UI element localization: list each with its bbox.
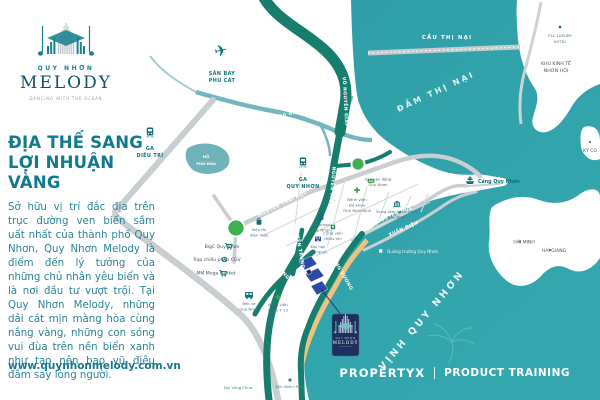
logo-brand-name: MELODY: [10, 73, 122, 93]
poi-benh-vien-tinh: Bệnh viện Đa khoa Tỉnh Bình Định: [342, 187, 372, 213]
dot-marker: [559, 26, 562, 29]
landmark-icon: [289, 379, 292, 382]
airplane-icon: ✈: [212, 40, 229, 61]
project-badge: QUY NHƠN MELODY: [332, 314, 359, 356]
intro-paragraph: Sở hữu vị trí đắc địa trên trục đường ve…: [8, 201, 155, 383]
bus-icon: [245, 292, 253, 299]
brand-logo: QUY NHƠN MELODY DANCING WITH THE OCEAN: [10, 8, 122, 101]
poi-ga-quy-nhon: GA QUY NHƠN: [286, 158, 319, 191]
shopping-cart-icon: [225, 243, 233, 249]
headline-line2: LỢI NHUẬN VÀNG: [8, 153, 114, 192]
svg-text:Núi Vũng Chua: Núi Vũng Chua: [224, 385, 252, 390]
svg-text:MM Mega Market: MM Mega Market: [196, 271, 235, 277]
intro-block: ĐỊA THẾ SANG LỢI NHUẬN VÀNG Sở hữu vị tr…: [8, 133, 155, 383]
product-training-label: PRODUCT TRAINING: [444, 367, 570, 379]
svg-text:Đại học: Đại học: [311, 244, 326, 249]
hospital-cross-icon: [354, 187, 360, 193]
svg-text:thiếu nhi: thiếu nhi: [324, 236, 341, 241]
footer-divider: [434, 367, 435, 379]
roundabout: [352, 158, 365, 171]
poster: QUY NHƠN MELODY CẦU THỊ NẠI ĐẦM THỊ NẠI …: [0, 0, 600, 400]
university-building-icon: [315, 237, 321, 242]
project-buildings: [299, 256, 328, 295]
logo-tagline: DANCING WITH THE OCEAN: [10, 96, 122, 101]
footer-brandline: PROPERTYX PRODUCT TRAINING: [339, 366, 570, 380]
svg-text:Siêu thị: Siêu thị: [252, 227, 267, 232]
roundabout: [228, 220, 245, 237]
dot-marker: [549, 249, 551, 251]
government-building-icon: [393, 201, 400, 207]
dot-marker: [589, 141, 591, 143]
square-icon: [379, 249, 382, 252]
train-icon: [300, 158, 307, 168]
poi-vung-chua: Núi Vũng Chua: [224, 385, 252, 390]
stadium-icon: [368, 179, 375, 183]
poi-san-van-dong: Sân vận động Quy Nhơn: [365, 177, 392, 188]
ship-icon: [466, 176, 474, 184]
svg-text:SÂN BAY: SÂN BAY: [209, 70, 236, 77]
svg-text:Công viên: Công viên: [323, 231, 343, 236]
website-url: www.quynhonmelody.com.vn: [8, 360, 181, 372]
headline-line1: ĐỊA THẾ SANG: [8, 133, 143, 152]
headline: ĐỊA THẾ SANG LỢI NHUẬN VÀNG: [8, 133, 155, 192]
phu-hoa-lake: [186, 144, 230, 174]
poi-mega-market: MM Mega Market: [196, 270, 235, 276]
melody-tower-icon: [11, 8, 121, 60]
svg-text:Bến xe: Bến xe: [242, 301, 256, 306]
svg-text:PHÙ CÁT: PHÙ CÁT: [209, 77, 236, 84]
film-reel-icon: [222, 257, 227, 262]
svg-text:điện máy: điện máy: [250, 233, 269, 238]
dot-marker: [519, 241, 521, 243]
park-icon: [331, 225, 335, 229]
propertyx-logo: PROPERTYX: [339, 366, 425, 380]
shopping-cart-icon: [219, 270, 227, 276]
poi-airport: ✈ SÂN BAY PHÙ CÁT: [209, 40, 236, 84]
logo-city-name: QUY NHƠN: [10, 65, 122, 72]
